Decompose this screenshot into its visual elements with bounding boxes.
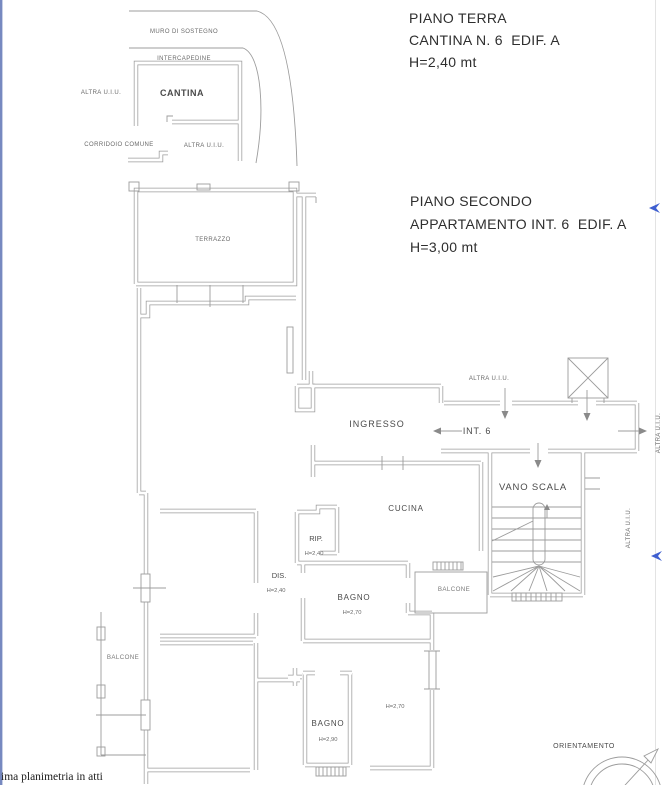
label-altra-uiu-top: ALTRA U.I.U. <box>469 376 509 382</box>
label-altra-uiu-right-upper: ALTRA U.I.U. <box>656 413 662 453</box>
label-corridoio-comune: CORRIDOIO COMUNE <box>84 142 153 148</box>
label-bagno-lower: BAGNO <box>312 719 345 728</box>
label-balcone-right: BALCONE <box>438 586 470 593</box>
label-dis-height: H=2,40 <box>267 588 286 594</box>
north-arrow-shaft <box>594 759 649 785</box>
title-height-300: H=3,00 mt <box>410 239 478 255</box>
label-bagno-upper: BAGNO <box>338 593 371 602</box>
floor-plan-drawing: MURO DI SOSTEGNO INTERCAPEDINE CANTINA A… <box>0 0 666 785</box>
label-altra-uiu-bottom: ALTRA U.I.U. <box>184 143 224 149</box>
terrace-posts <box>129 182 316 203</box>
scan-left-blue-border <box>0 0 2 785</box>
label-balcone-left: BALCONE <box>107 654 139 661</box>
label-int6: INT. 6 <box>463 426 491 436</box>
compass: ORIENTAMENTO <box>553 743 662 785</box>
label-camera-height: H=2,70 <box>386 704 405 710</box>
label-bagno-upper-height: H=2,70 <box>343 610 362 616</box>
balcony-left <box>97 612 146 756</box>
label-dis: DIS. <box>272 571 287 580</box>
threshold-hatch <box>316 767 346 776</box>
title-height-240: H=2,40 mt <box>409 54 477 70</box>
label-vano-scala: VANO SCALA <box>499 482 567 493</box>
label-altra-uiu-right-lower: ALTRA U.I.U. <box>626 508 632 548</box>
second-floor-title: PIANO SECONDO APPARTAMENTO INT. 6 EDIF. … <box>410 193 627 255</box>
label-cucina: CUCINA <box>388 504 423 513</box>
second-floor-plan: TERRAZZO INGRESSO INT. 6 ALTRA U.I.U. AL… <box>96 182 662 785</box>
blue-artifact-icon <box>651 551 662 561</box>
label-muro-di-sostegno: MURO DI SOSTEGNO <box>150 29 218 35</box>
ground-floor-plan: MURO DI SOSTEGNO INTERCAPEDINE CANTINA A… <box>81 11 297 166</box>
elevator-shaft <box>568 358 608 403</box>
west-windows <box>96 574 166 730</box>
label-ingresso: INGRESSO <box>349 419 405 429</box>
label-terrazzo: TERRAZZO <box>195 237 231 243</box>
label-orientamento: ORIENTAMENTO <box>553 743 615 750</box>
label-intercapedine: INTERCAPEDINE <box>157 56 211 62</box>
window-symbol <box>287 327 293 373</box>
label-rip: RIP. <box>309 534 323 543</box>
title-cantina-n6: CANTINA N. 6 EDIF. A <box>409 32 560 48</box>
watermark-text: ima planimetria in atti <box>1 771 103 783</box>
ground-floor-title: PIANO TERRA CANTINA N. 6 EDIF. A H=2,40 … <box>409 10 560 70</box>
floor-plan-document: MURO DI SOSTEGNO INTERCAPEDINE CANTINA A… <box>0 0 666 785</box>
label-bagno-lower-height: H=2,90 <box>319 737 338 743</box>
label-cantina: CANTINA <box>160 88 204 98</box>
title-piano-terra: PIANO TERRA <box>409 10 507 26</box>
label-rip-height: H=2,40 <box>305 551 324 557</box>
east-window-band <box>424 651 440 689</box>
blue-artifact-icon <box>649 203 660 213</box>
title-piano-secondo: PIANO SECONDO <box>410 193 532 209</box>
compass-inner-circle <box>589 764 655 785</box>
title-appartamento-int6: APPARTAMENTO INT. 6 EDIF. A <box>410 216 627 232</box>
label-altra-uiu-left: ALTRA U.I.U. <box>81 90 121 96</box>
